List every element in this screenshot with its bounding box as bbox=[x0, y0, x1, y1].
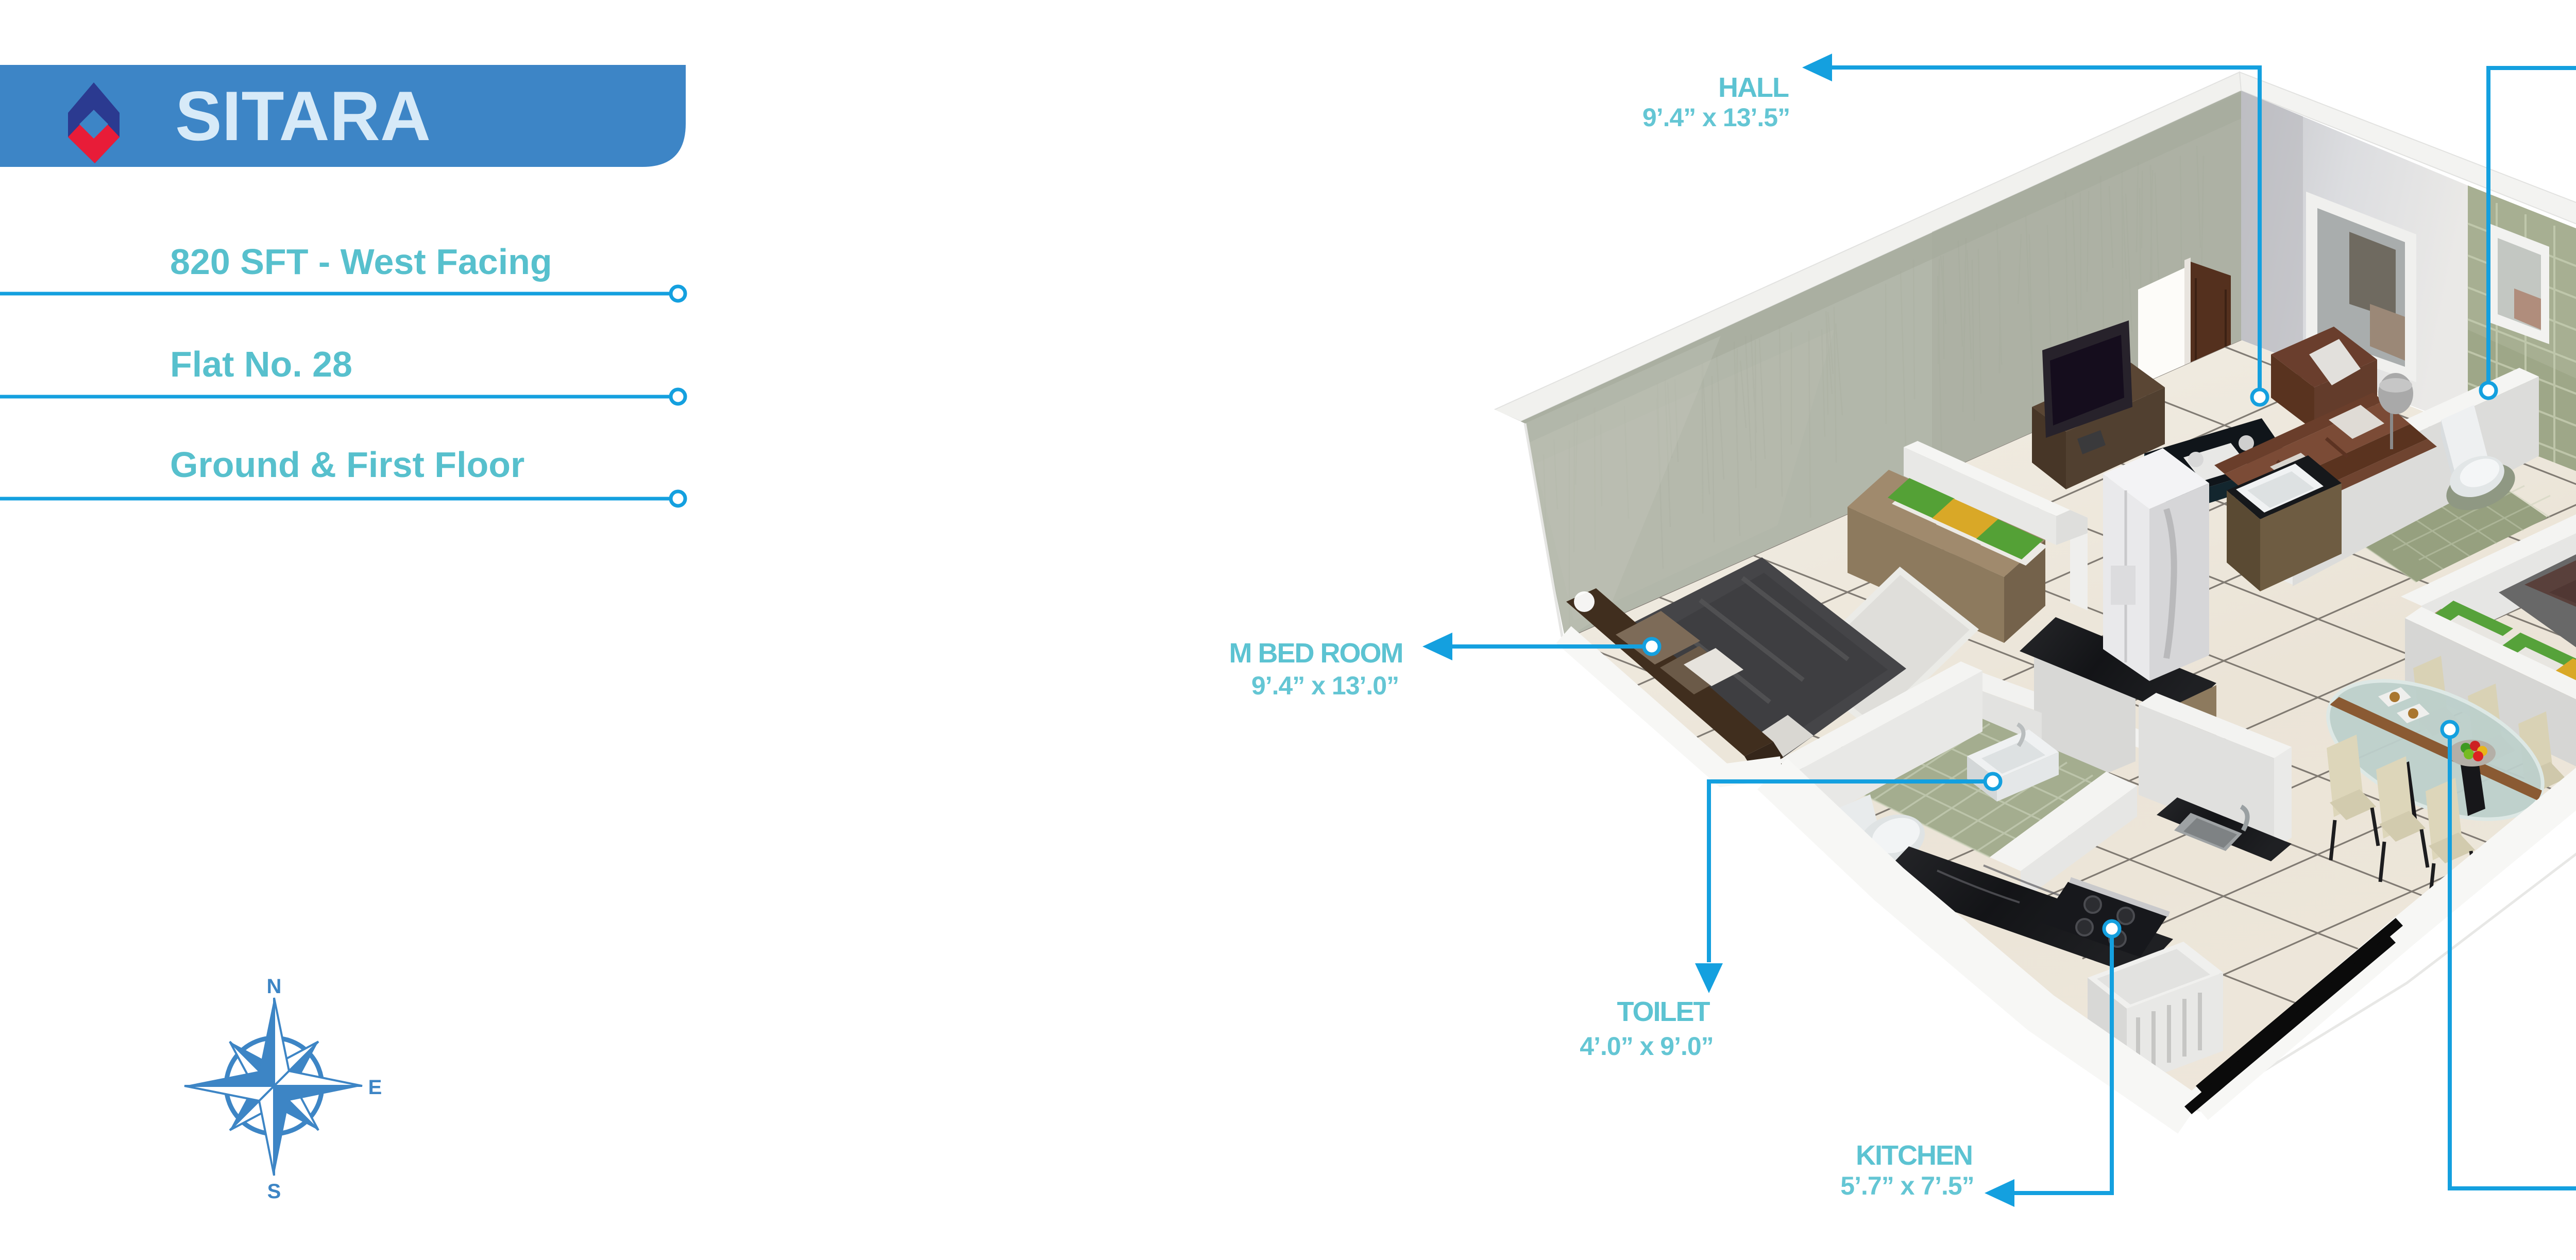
svg-text:820 SFT - West Facing: 820 SFT - West Facing bbox=[170, 242, 552, 282]
svg-text:SITARA: SITARA bbox=[175, 77, 431, 155]
svg-text:N: N bbox=[267, 975, 282, 998]
svg-text:9’.4” x 13’.5”: 9’.4” x 13’.5” bbox=[1642, 103, 1790, 132]
svg-text:M BED ROOM: M BED ROOM bbox=[1229, 638, 1403, 669]
svg-text:9’.4” x 13’.0”: 9’.4” x 13’.0” bbox=[1251, 671, 1399, 700]
svg-text:Ground & First Floor: Ground & First Floor bbox=[170, 445, 524, 485]
svg-text:TOILET: TOILET bbox=[1617, 996, 1710, 1027]
svg-text:S: S bbox=[267, 1180, 281, 1203]
svg-text:5’.7” x 7’.5”: 5’.7” x 7’.5” bbox=[1840, 1171, 1974, 1200]
svg-text:Flat No. 28: Flat No. 28 bbox=[170, 344, 352, 384]
svg-text:4’.0” x 9’.0”: 4’.0” x 9’.0” bbox=[1580, 1032, 1713, 1061]
svg-text:E: E bbox=[368, 1076, 382, 1099]
svg-text:HALL: HALL bbox=[1718, 72, 1789, 103]
svg-text:KITCHEN: KITCHEN bbox=[1856, 1140, 1972, 1171]
